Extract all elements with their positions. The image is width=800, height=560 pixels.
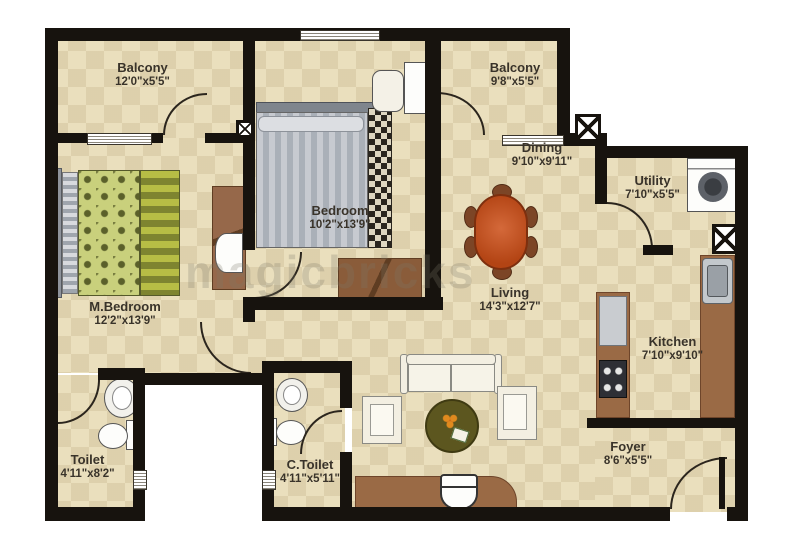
armchair-right-seat: [503, 394, 527, 430]
wall-segment: [133, 368, 145, 520]
kitchen-sink-basin: [707, 265, 728, 297]
room-name: Bedroom: [290, 203, 390, 219]
toilet-vent-window: [133, 470, 147, 490]
floor-dining-living: [435, 140, 600, 512]
wall-segment: [735, 156, 748, 521]
room-label-kitchen: Kitchen 7'10"x9'10": [620, 334, 725, 363]
wall-segment: [133, 373, 274, 385]
armchair-left-seat: [370, 404, 394, 436]
room-label-bedroom: Bedroom 10'2"x13'9": [290, 203, 390, 232]
balcony-1-window: [87, 133, 152, 145]
wall-segment: [340, 507, 670, 521]
entrance-door-leaf: [719, 457, 725, 509]
wall-segment: [425, 28, 441, 310]
toilet-washbasin-bowl: [112, 386, 132, 410]
room-dims: 10'2"x13'9": [290, 219, 390, 233]
room-name: Utility: [605, 173, 700, 189]
room-label-foyer: Foyer 8'6"x5'5": [588, 439, 668, 468]
wall-segment: [587, 418, 735, 428]
room-label-common-toilet: C.Toilet 4'11"x5'11": [265, 457, 355, 486]
master-bed: [78, 170, 140, 296]
room-name: Toilet: [45, 452, 130, 468]
toilet-wc-bowl: [98, 423, 128, 449]
room-name: Balcony: [460, 60, 570, 76]
shaft-x-icon: [715, 227, 735, 251]
bedroom-window: [300, 30, 380, 41]
wall-segment: [595, 146, 748, 158]
room-label-master-bedroom: M.Bedroom 12'2"x13'9": [60, 299, 190, 328]
room-dims: 7'10"x9'10": [620, 350, 725, 364]
room-name: Kitchen: [620, 334, 725, 350]
room-name: Dining: [487, 140, 597, 156]
shaft-x-icon: [578, 117, 598, 139]
wall-segment: [262, 361, 352, 373]
room-dims: 4'11"x8'2": [45, 468, 130, 482]
room-label-balcony-2: Balcony 9'8"x5'5": [460, 60, 570, 89]
wall-segment: [45, 368, 58, 380]
master-bed-pillows: [62, 172, 78, 294]
room-label-toilet: Toilet 4'11"x8'2": [45, 452, 130, 481]
room-dims: 4'11"x5'11": [265, 473, 355, 487]
ctoilet-washbasin-bowl: [283, 385, 301, 405]
wall-segment: [45, 507, 145, 521]
wall-segment: [58, 133, 87, 143]
room-name: Living: [460, 285, 560, 301]
duct-shaft: [236, 120, 254, 138]
room-label-dining: Dining 9'10"x9'11": [487, 140, 597, 169]
tv-unit: [338, 258, 422, 298]
dressing-unit: [215, 233, 243, 273]
wall-segment: [243, 297, 443, 310]
dining-table: [474, 194, 528, 270]
planter-pot: [440, 474, 478, 510]
bed-pillow: [258, 116, 364, 132]
stove: [599, 360, 627, 398]
room-dims: 9'10"x9'11": [487, 156, 597, 170]
washing-machine-drum: [698, 172, 728, 202]
room-dims: 9'8"x5'5": [460, 76, 570, 90]
wall-segment: [340, 373, 352, 408]
room-dims: 8'6"x5'5": [588, 455, 668, 469]
sofa-seat: [408, 364, 451, 392]
wall-segment: [643, 245, 673, 255]
planter-platform: [355, 476, 517, 510]
room-label-utility: Utility 7'10"x5'5": [605, 173, 700, 202]
room-name: C.Toilet: [265, 457, 355, 473]
room-label-balcony-1: Balcony 12'0"x5'5": [85, 60, 200, 89]
floor-plan: Balcony 12'0"x5'5" Bedroom 10'2"x13'9" B…: [0, 0, 800, 560]
wall-segment: [727, 507, 748, 521]
room-label-living: Living 14'3"x12'7": [460, 285, 560, 314]
duct-shaft: [712, 224, 738, 254]
shaft-x-icon: [239, 123, 251, 135]
room-name: Foyer: [588, 439, 668, 455]
room-dims: 12'2"x13'9": [60, 315, 190, 329]
wall-segment: [262, 373, 274, 520]
room-dims: 12'0"x5'5": [85, 76, 200, 90]
duct-shaft: [575, 114, 601, 142]
sofa-seat: [451, 364, 495, 392]
room-name: M.Bedroom: [60, 299, 190, 315]
desk-chair: [372, 70, 404, 112]
room-name: Balcony: [85, 60, 200, 76]
room-dims: 7'10"x5'5": [605, 189, 700, 203]
room-dims: 14'3"x12'7": [460, 301, 560, 315]
master-bed-blanket: [140, 170, 180, 296]
wall-segment: [45, 28, 58, 521]
wall-segment: [243, 28, 255, 250]
